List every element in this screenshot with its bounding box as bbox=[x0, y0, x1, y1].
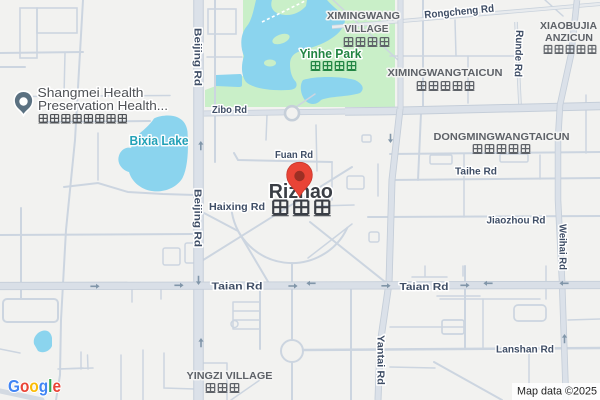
svg-text:Weihai Rd: Weihai Rd bbox=[557, 224, 569, 270]
svg-text:Haixing Rd: Haixing Rd bbox=[209, 201, 265, 213]
svg-text:XIMINGWANG: XIMINGWANG bbox=[327, 11, 400, 22]
svg-text:Bixia Lake: Bixia Lake bbox=[130, 134, 189, 148]
svg-text:Yantai Rd: Yantai Rd bbox=[375, 335, 387, 385]
svg-text:Preservation Health...: Preservation Health... bbox=[38, 99, 168, 113]
svg-text:Runde Rd: Runde Rd bbox=[512, 30, 526, 77]
svg-text:Taian Rd: Taian Rd bbox=[212, 281, 263, 293]
svg-text:Fuan Rd: Fuan Rd bbox=[275, 149, 313, 161]
svg-text:Google: Google bbox=[8, 376, 61, 396]
svg-text:ANZICUN: ANZICUN bbox=[545, 33, 593, 44]
svg-text:Yinhe Park: Yinhe Park bbox=[300, 46, 363, 61]
svg-text:Beijing Rd: Beijing Rd bbox=[192, 28, 204, 86]
svg-text:Beijing Rd: Beijing Rd bbox=[192, 189, 204, 247]
svg-text:Zibo Rd: Zibo Rd bbox=[212, 104, 247, 116]
svg-text:Jiaozhou Rd: Jiaozhou Rd bbox=[487, 215, 546, 227]
svg-text:YINGZI VILLAGE: YINGZI VILLAGE bbox=[187, 371, 273, 382]
svg-text:DONGMINGWANGTAICUN: DONGMINGWANGTAICUN bbox=[434, 132, 570, 143]
svg-text:Map data ©2025: Map data ©2025 bbox=[517, 386, 597, 398]
svg-text:XIMINGWANGTAICUN: XIMINGWANGTAICUN bbox=[388, 68, 503, 79]
svg-text:Shangmei Health: Shangmei Health bbox=[38, 86, 144, 100]
svg-text:VILLAGE: VILLAGE bbox=[345, 24, 389, 35]
svg-text:XIAOBUJIA: XIAOBUJIA bbox=[540, 21, 597, 32]
svg-text:Taihe Rd: Taihe Rd bbox=[455, 166, 497, 178]
svg-text:Lanshan Rd: Lanshan Rd bbox=[496, 344, 554, 356]
svg-text:Taian Rd: Taian Rd bbox=[400, 281, 449, 293]
